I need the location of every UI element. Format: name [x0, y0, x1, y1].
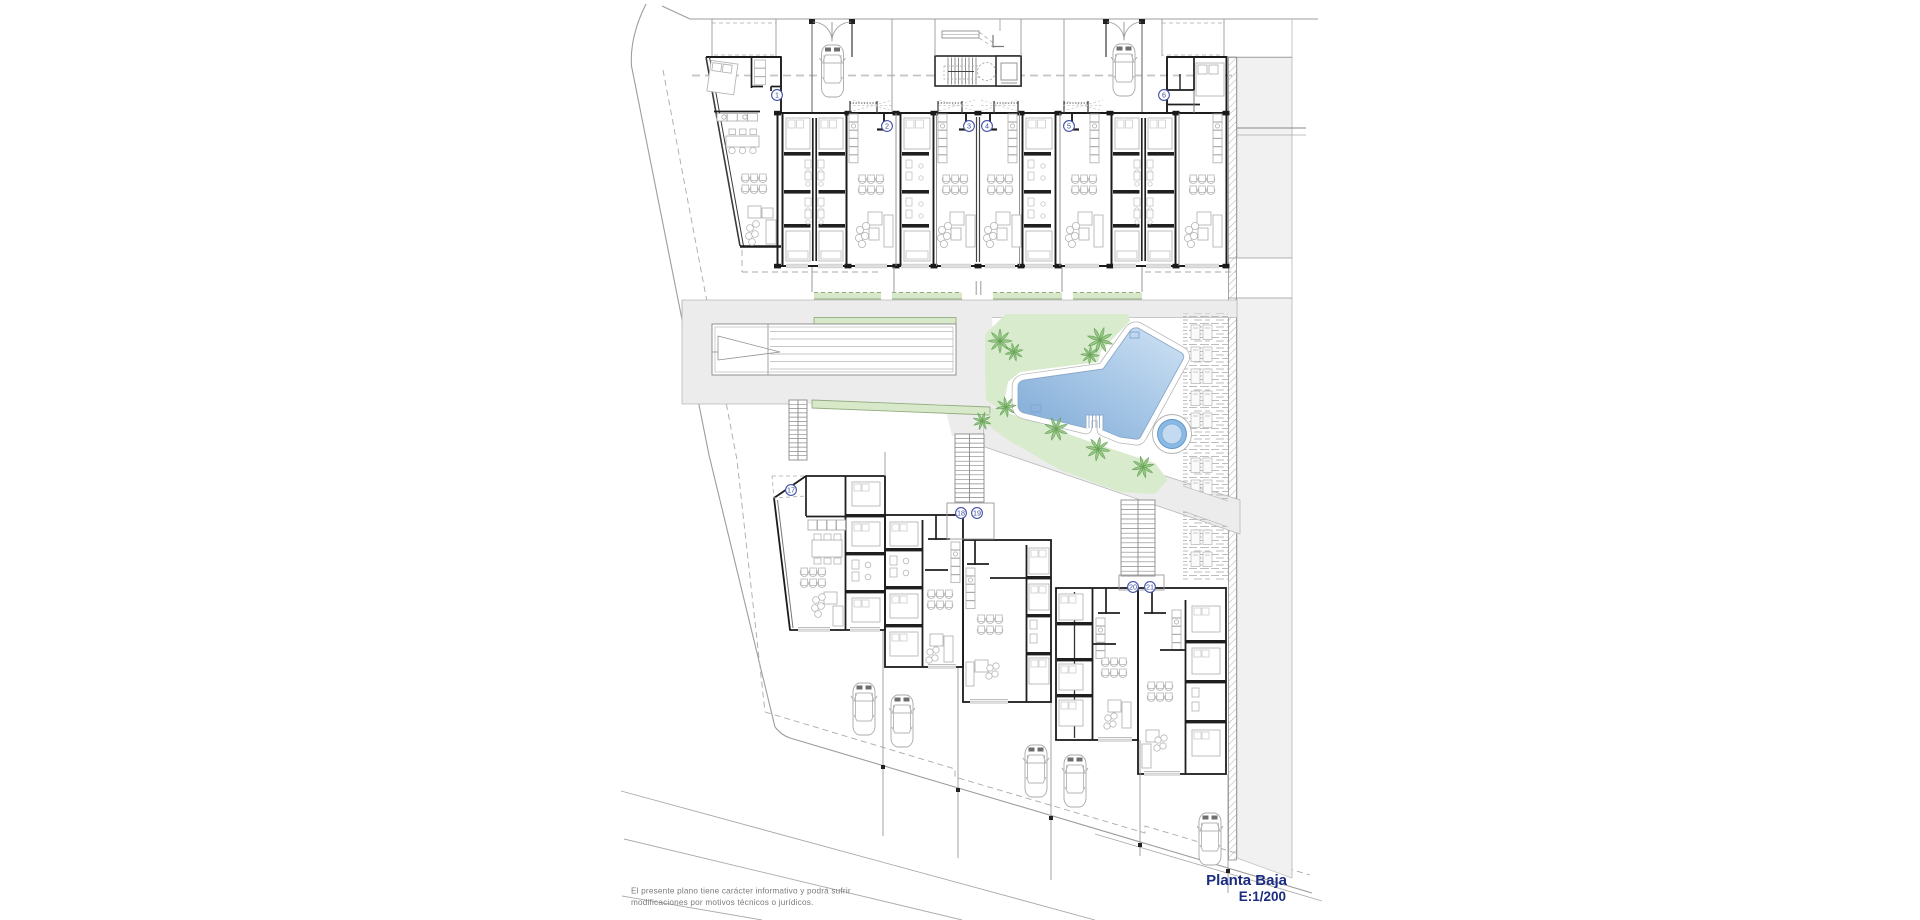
svg-text:2: 2 — [885, 122, 889, 131]
svg-text:Planta Baja: Planta Baja — [1206, 872, 1288, 889]
svg-text:E:1/200: E:1/200 — [1239, 889, 1286, 904]
svg-text:17: 17 — [787, 486, 795, 495]
svg-text:18: 18 — [957, 509, 965, 518]
svg-text:3: 3 — [967, 122, 971, 131]
svg-text:6: 6 — [1162, 91, 1166, 100]
svg-text:20: 20 — [1129, 583, 1137, 592]
svg-text:5: 5 — [1067, 122, 1071, 131]
svg-text:21: 21 — [1146, 583, 1154, 592]
svg-text:modificaciones por motivos téc: modificaciones por motivos técnicos o ju… — [631, 898, 814, 907]
svg-text:19: 19 — [973, 509, 981, 518]
svg-text:El presente plano tiene ca: El presente plano tiene carácter informa… — [631, 887, 851, 896]
svg-text:4: 4 — [985, 122, 989, 131]
svg-text:1: 1 — [775, 91, 779, 100]
